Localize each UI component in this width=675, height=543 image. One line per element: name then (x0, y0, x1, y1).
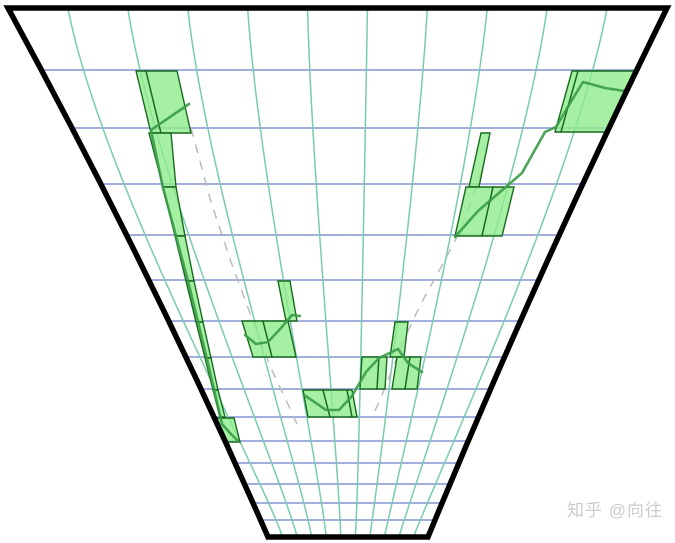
grid-vertical-line (188, 8, 312, 537)
perspective-chart-canvas (0, 0, 675, 543)
dashed-guide-line (191, 128, 297, 424)
candle-cell (377, 357, 387, 389)
grid-vertical-line (248, 8, 327, 537)
price-line-layer (151, 82, 631, 441)
candle-cell (469, 133, 490, 187)
grid-vertical-line (384, 8, 487, 537)
perspective-chart-figure: 知乎 @向往 (0, 0, 675, 543)
watermark: 知乎 @向往 (567, 496, 663, 521)
grid-vertical-line (370, 8, 428, 537)
grid-vertical-line (308, 8, 341, 537)
candles-layer (136, 71, 634, 442)
grid-vertical-line (355, 8, 367, 537)
